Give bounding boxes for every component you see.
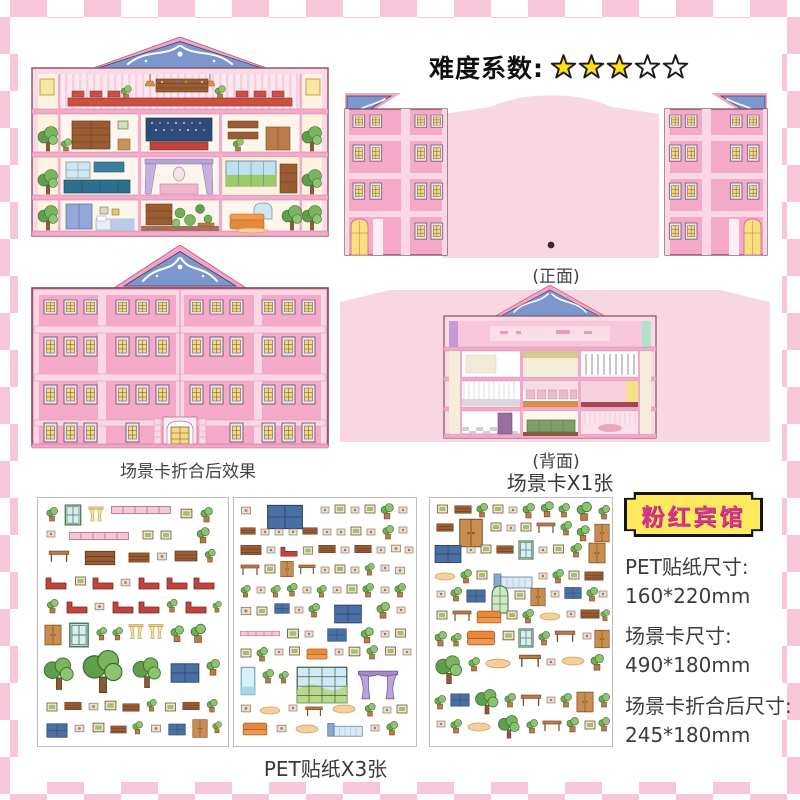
spec-scene-card-size-value: 490*180mm — [625, 653, 750, 677]
dollhouse-interior-illustration — [30, 37, 330, 243]
front-side-label: (正面) — [456, 262, 656, 287]
sticker-sheet-count-label: PET贴纸X3张 — [218, 753, 433, 782]
product-promo-page: 难度系数: — [0, 0, 800, 800]
star-filled-icon — [606, 54, 633, 81]
product-name: 粉红宾馆 — [642, 498, 746, 532]
spec-folded-size-label: 场景卡折合后尺寸: — [625, 690, 792, 719]
folded-effect-label: 场景卡折合后效果 — [48, 457, 328, 482]
sticker-sheet-3 — [429, 497, 613, 747]
star-filled-icon — [550, 54, 577, 81]
folded-scene-card-illustration — [30, 245, 330, 451]
scene-card-count-label: 场景卡X1张 — [460, 467, 660, 496]
content-layer: 难度系数: — [0, 0, 800, 800]
sticker-sheet-1 — [37, 497, 229, 747]
spec-pet-sticker-size-label: PET贴纸尺寸: — [625, 551, 749, 580]
star-filled-icon — [578, 54, 605, 81]
spec-folded-size-value: 245*180mm — [625, 723, 750, 747]
star-empty-icon — [634, 54, 661, 81]
sticker-sheet-2 — [233, 497, 417, 747]
difficulty-rating: 难度系数: — [429, 49, 689, 85]
difficulty-stars — [549, 54, 689, 81]
spec-pet-sticker-size-value: 160*220mm — [625, 584, 750, 608]
star-empty-icon — [662, 54, 689, 81]
scene-card-back-illustration — [340, 285, 770, 443]
scene-card-front-illustration — [343, 93, 769, 261]
product-name-badge-face: 粉红宾馆 — [627, 495, 761, 535]
spec-scene-card-size-label: 场景卡尺寸: — [625, 620, 732, 649]
difficulty-label: 难度系数: — [429, 49, 544, 85]
product-name-badge: 粉红宾馆 — [624, 492, 763, 537]
